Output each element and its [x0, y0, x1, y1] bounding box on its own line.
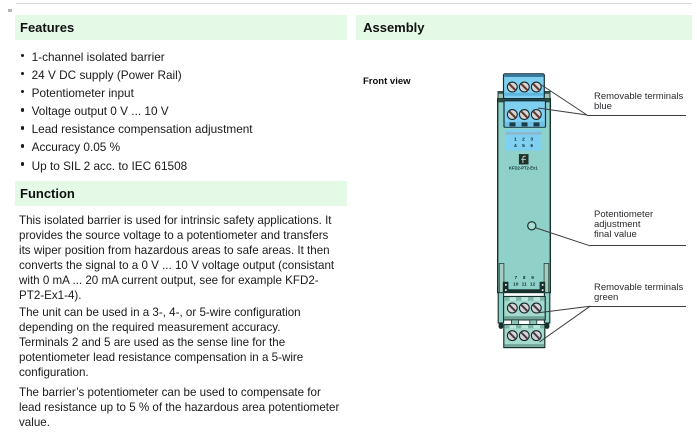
- svg-text:2: 2: [522, 136, 525, 142]
- svg-text:10: 10: [513, 282, 519, 288]
- svg-text:9: 9: [531, 275, 534, 281]
- svg-text:12: 12: [530, 282, 536, 288]
- svg-text:3: 3: [530, 136, 533, 142]
- svg-text:KFD2-PT2-Ex1: KFD2-PT2-Ex1: [509, 165, 539, 170]
- svg-text:7: 7: [514, 275, 517, 281]
- svg-text:11: 11: [522, 282, 527, 288]
- svg-text:4: 4: [514, 143, 517, 149]
- svg-text:1: 1: [514, 136, 517, 142]
- svg-text:6: 6: [530, 143, 533, 149]
- svg-text:8: 8: [523, 275, 526, 281]
- svg-text:5: 5: [522, 143, 525, 149]
